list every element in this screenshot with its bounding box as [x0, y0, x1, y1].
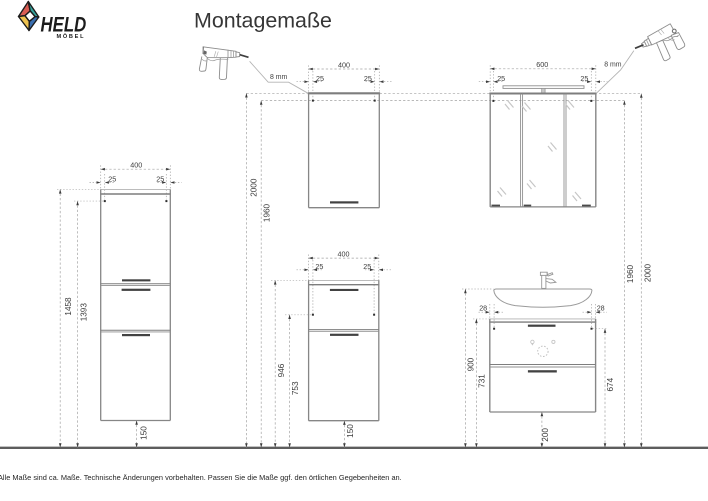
svg-text:2000: 2000 [250, 178, 259, 197]
svg-text:150: 150 [346, 424, 355, 438]
svg-text:25: 25 [315, 262, 323, 271]
svg-text:674: 674 [606, 377, 615, 391]
svg-text:1458: 1458 [64, 297, 73, 316]
svg-text:150: 150 [140, 426, 149, 440]
svg-text:28: 28 [479, 303, 487, 312]
svg-text:Montagemaße: Montagemaße [194, 9, 332, 33]
svg-text:MÖBEL: MÖBEL [57, 33, 86, 40]
svg-text:1960: 1960 [263, 203, 272, 222]
svg-text:Alle Maße sind ca. Maße. Techn: Alle Maße sind ca. Maße. Technische Ände… [0, 473, 402, 482]
svg-text:25: 25 [363, 262, 371, 271]
svg-text:25: 25 [156, 174, 164, 183]
svg-text:25: 25 [108, 174, 116, 183]
svg-text:400: 400 [338, 249, 350, 258]
svg-text:25: 25 [364, 74, 372, 83]
svg-text:900: 900 [467, 357, 476, 371]
svg-text:8 mm: 8 mm [270, 74, 287, 81]
svg-text:400: 400 [130, 161, 142, 170]
svg-text:8 mm: 8 mm [604, 62, 621, 69]
svg-text:946: 946 [277, 363, 286, 377]
svg-text:25: 25 [316, 74, 324, 83]
svg-text:1393: 1393 [80, 303, 89, 322]
svg-text:400: 400 [338, 60, 350, 69]
svg-text:731: 731 [478, 374, 487, 388]
svg-text:200: 200 [541, 428, 550, 442]
svg-text:25: 25 [580, 74, 588, 83]
svg-text:600: 600 [536, 60, 548, 69]
svg-text:753: 753 [291, 381, 300, 395]
svg-text:2000: 2000 [644, 263, 653, 282]
svg-text:25: 25 [497, 74, 505, 83]
svg-text:1960: 1960 [626, 264, 635, 283]
svg-text:28: 28 [597, 303, 605, 312]
